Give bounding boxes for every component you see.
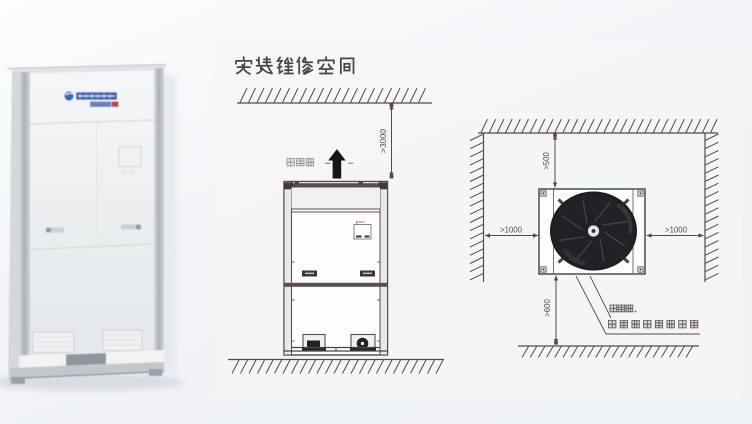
svg-text:>600: >600: [543, 299, 552, 317]
svg-text:>1000: >1000: [665, 226, 688, 235]
svg-text:>500: >500: [542, 152, 551, 170]
svg-text:>1000: >1000: [500, 226, 523, 235]
svg-text:>3000: >3000: [378, 129, 388, 153]
